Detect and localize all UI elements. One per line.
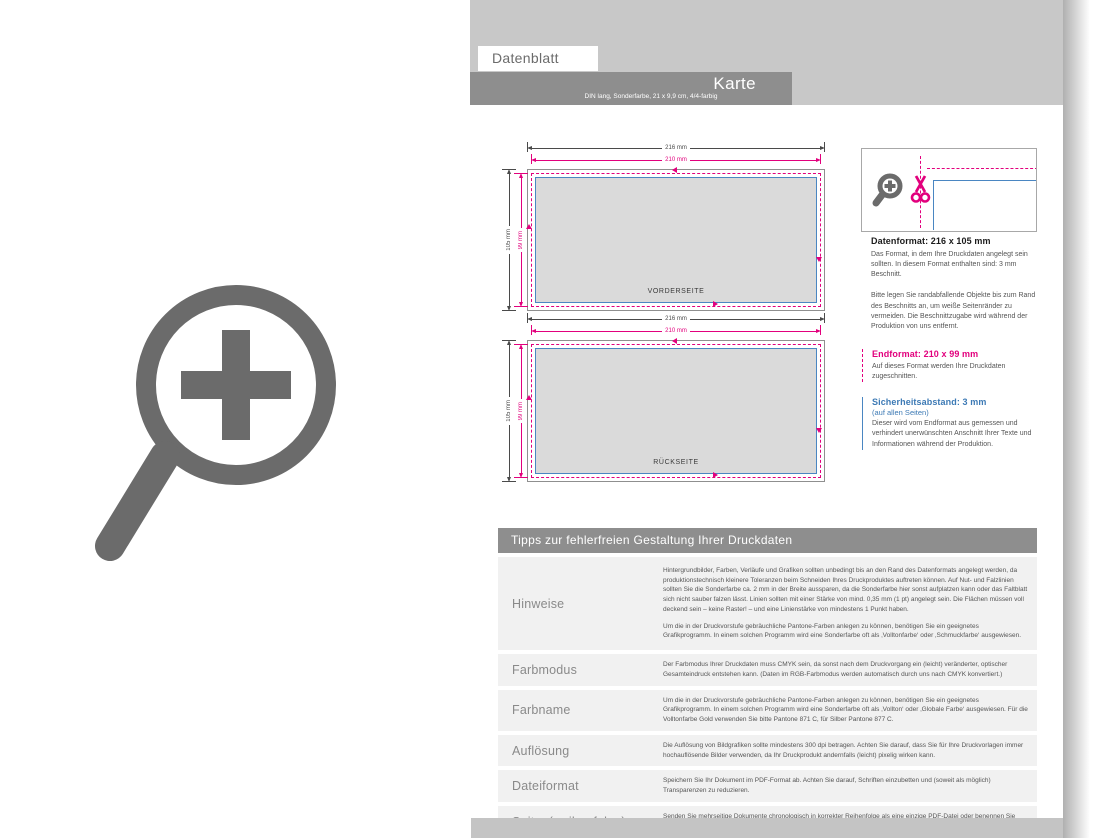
- zoom-in-icon: [870, 172, 906, 210]
- tip-row-farbname: Farbname Um die in der Druckvorstufe geb…: [498, 690, 1037, 731]
- tip-row-label: Farbname: [498, 690, 663, 731]
- dim-trim-height: 99 mm: [516, 173, 526, 307]
- page-edge-shadow: [1063, 0, 1090, 838]
- dim-outer-width: 216 mm: [527, 315, 825, 323]
- page-top-band: Datenblatt Karte DIN lang, Sonderfarbe, …: [470, 0, 1063, 105]
- datenformat-text: Bitte legen Sie randabfallende Objekte b…: [871, 291, 1038, 332]
- diagram-front: 216 mm 210 mm 105 mm 99 mm VOR: [490, 144, 860, 315]
- bleed-arrow-icon: [672, 167, 677, 173]
- tab-datenblatt[interactable]: Datenblatt: [478, 46, 598, 71]
- datenformat-title: Datenformat: 216 x 105 mm: [871, 236, 1038, 246]
- sicherheitsabstand-section: Sicherheitsabstand: 3 mm (auf allen Seit…: [862, 397, 1038, 449]
- sicherheitsabstand-text: Dieser wird vom Endformat aus gemessen u…: [872, 419, 1038, 449]
- endformat-text: Auf dieses Format werden Ihre Druckdaten…: [872, 362, 1038, 382]
- tip-row-label: Farbmodus: [498, 654, 663, 686]
- trim-line-preview: [927, 168, 1037, 169]
- tip-row-label: Hinweise: [498, 557, 663, 650]
- dim-trim-width: 210 mm: [531, 156, 821, 164]
- front-face-label: VORDERSEITE: [535, 288, 817, 295]
- tip-row-body: Speichern Sie Ihr Dokument im PDF-Format…: [663, 770, 1037, 802]
- safety-rect: [535, 177, 817, 303]
- dim-outer-height: 105 mm: [504, 169, 514, 311]
- tip-row-body: Um die in der Druckvorstufe gebräuchlich…: [663, 690, 1037, 731]
- bleed-arrow-icon: [713, 472, 718, 478]
- tip-row-aufloesung: Auflösung Die Auflösung von Bildgrafiken…: [498, 735, 1037, 767]
- zoom-cursor-icon[interactable]: [86, 273, 376, 573]
- page-title: Karte: [470, 74, 792, 93]
- datenformat-section: Datenformat: 216 x 105 mm Das Format, in…: [862, 236, 1038, 332]
- safety-line-preview: [933, 180, 934, 230]
- product-banner: Karte DIN lang, Sonderfarbe, 21 x 9,9 cm…: [470, 72, 792, 105]
- bleed-arrow-icon: [526, 224, 532, 229]
- sicherheitsabstand-title: Sicherheitsabstand: 3 mm: [872, 397, 1038, 407]
- dim-trim-width: 210 mm: [531, 327, 821, 335]
- diagram-back: 216 mm 210 mm 105 mm 99 mm RÜC: [490, 315, 860, 486]
- datasheet-page: Datenblatt Karte DIN lang, Sonderfarbe, …: [470, 0, 1063, 838]
- bleed-arrow-icon: [713, 301, 718, 307]
- tip-row-hinweise: Hinweise Hintergrundbilder, Farben, Verl…: [498, 557, 1037, 650]
- tip-row-farbmodus: Farbmodus Der Farbmodus Ihrer Druckdaten…: [498, 654, 1037, 686]
- dim-trim-height: 99 mm: [516, 344, 526, 478]
- tip-row-label: Auflösung: [498, 735, 663, 767]
- tips-header: Tipps zur fehlerfreien Gestaltung Ihrer …: [498, 528, 1037, 553]
- page-subtitle: DIN lang, Sonderfarbe, 21 x 9,9 cm, 4/4-…: [470, 93, 792, 101]
- page-bottom-band: [471, 818, 1063, 838]
- endformat-section: Endformat: 210 x 99 mm Auf dieses Format…: [862, 349, 1038, 382]
- tip-row-dateiformat: Dateiformat Speichern Sie Ihr Dokument i…: [498, 770, 1037, 802]
- datenformat-text: Das Format, in dem Ihre Druckdaten angel…: [871, 250, 1038, 280]
- datasheet-viewer: Datenblatt Karte DIN lang, Sonderfarbe, …: [0, 0, 1117, 838]
- sicherheitsabstand-subtitle: (auf allen Seiten): [872, 408, 1038, 417]
- tip-row-body: Die Auflösung von Bildgrafiken sollte mi…: [663, 735, 1037, 767]
- format-info-panel: Datenformat: 216 x 105 mm Das Format, in…: [862, 236, 1038, 450]
- tip-row-body: Der Farbmodus Ihrer Druckdaten muss CMYK…: [663, 654, 1037, 686]
- bleed-arrow-icon: [526, 395, 532, 400]
- corner-zoom-preview: [861, 148, 1037, 232]
- tips-section: Tipps zur fehlerfreien Gestaltung Ihrer …: [498, 528, 1037, 837]
- dim-outer-height: 105 mm: [504, 340, 514, 482]
- bleed-arrow-icon: [816, 257, 822, 262]
- back-face-label: RÜCKSEITE: [535, 459, 817, 466]
- scissors-icon: [910, 175, 931, 205]
- tip-row-body: Hintergrundbilder, Farben, Verläufe und …: [663, 557, 1037, 650]
- safety-rect: [535, 348, 817, 474]
- tip-row-label: Dateiformat: [498, 770, 663, 802]
- endformat-title: Endformat: 210 x 99 mm: [872, 349, 1038, 359]
- bleed-arrow-icon: [672, 338, 677, 344]
- bleed-arrow-icon: [816, 428, 822, 433]
- safety-line-preview: [933, 180, 1037, 181]
- dim-outer-width: 216 mm: [527, 144, 825, 152]
